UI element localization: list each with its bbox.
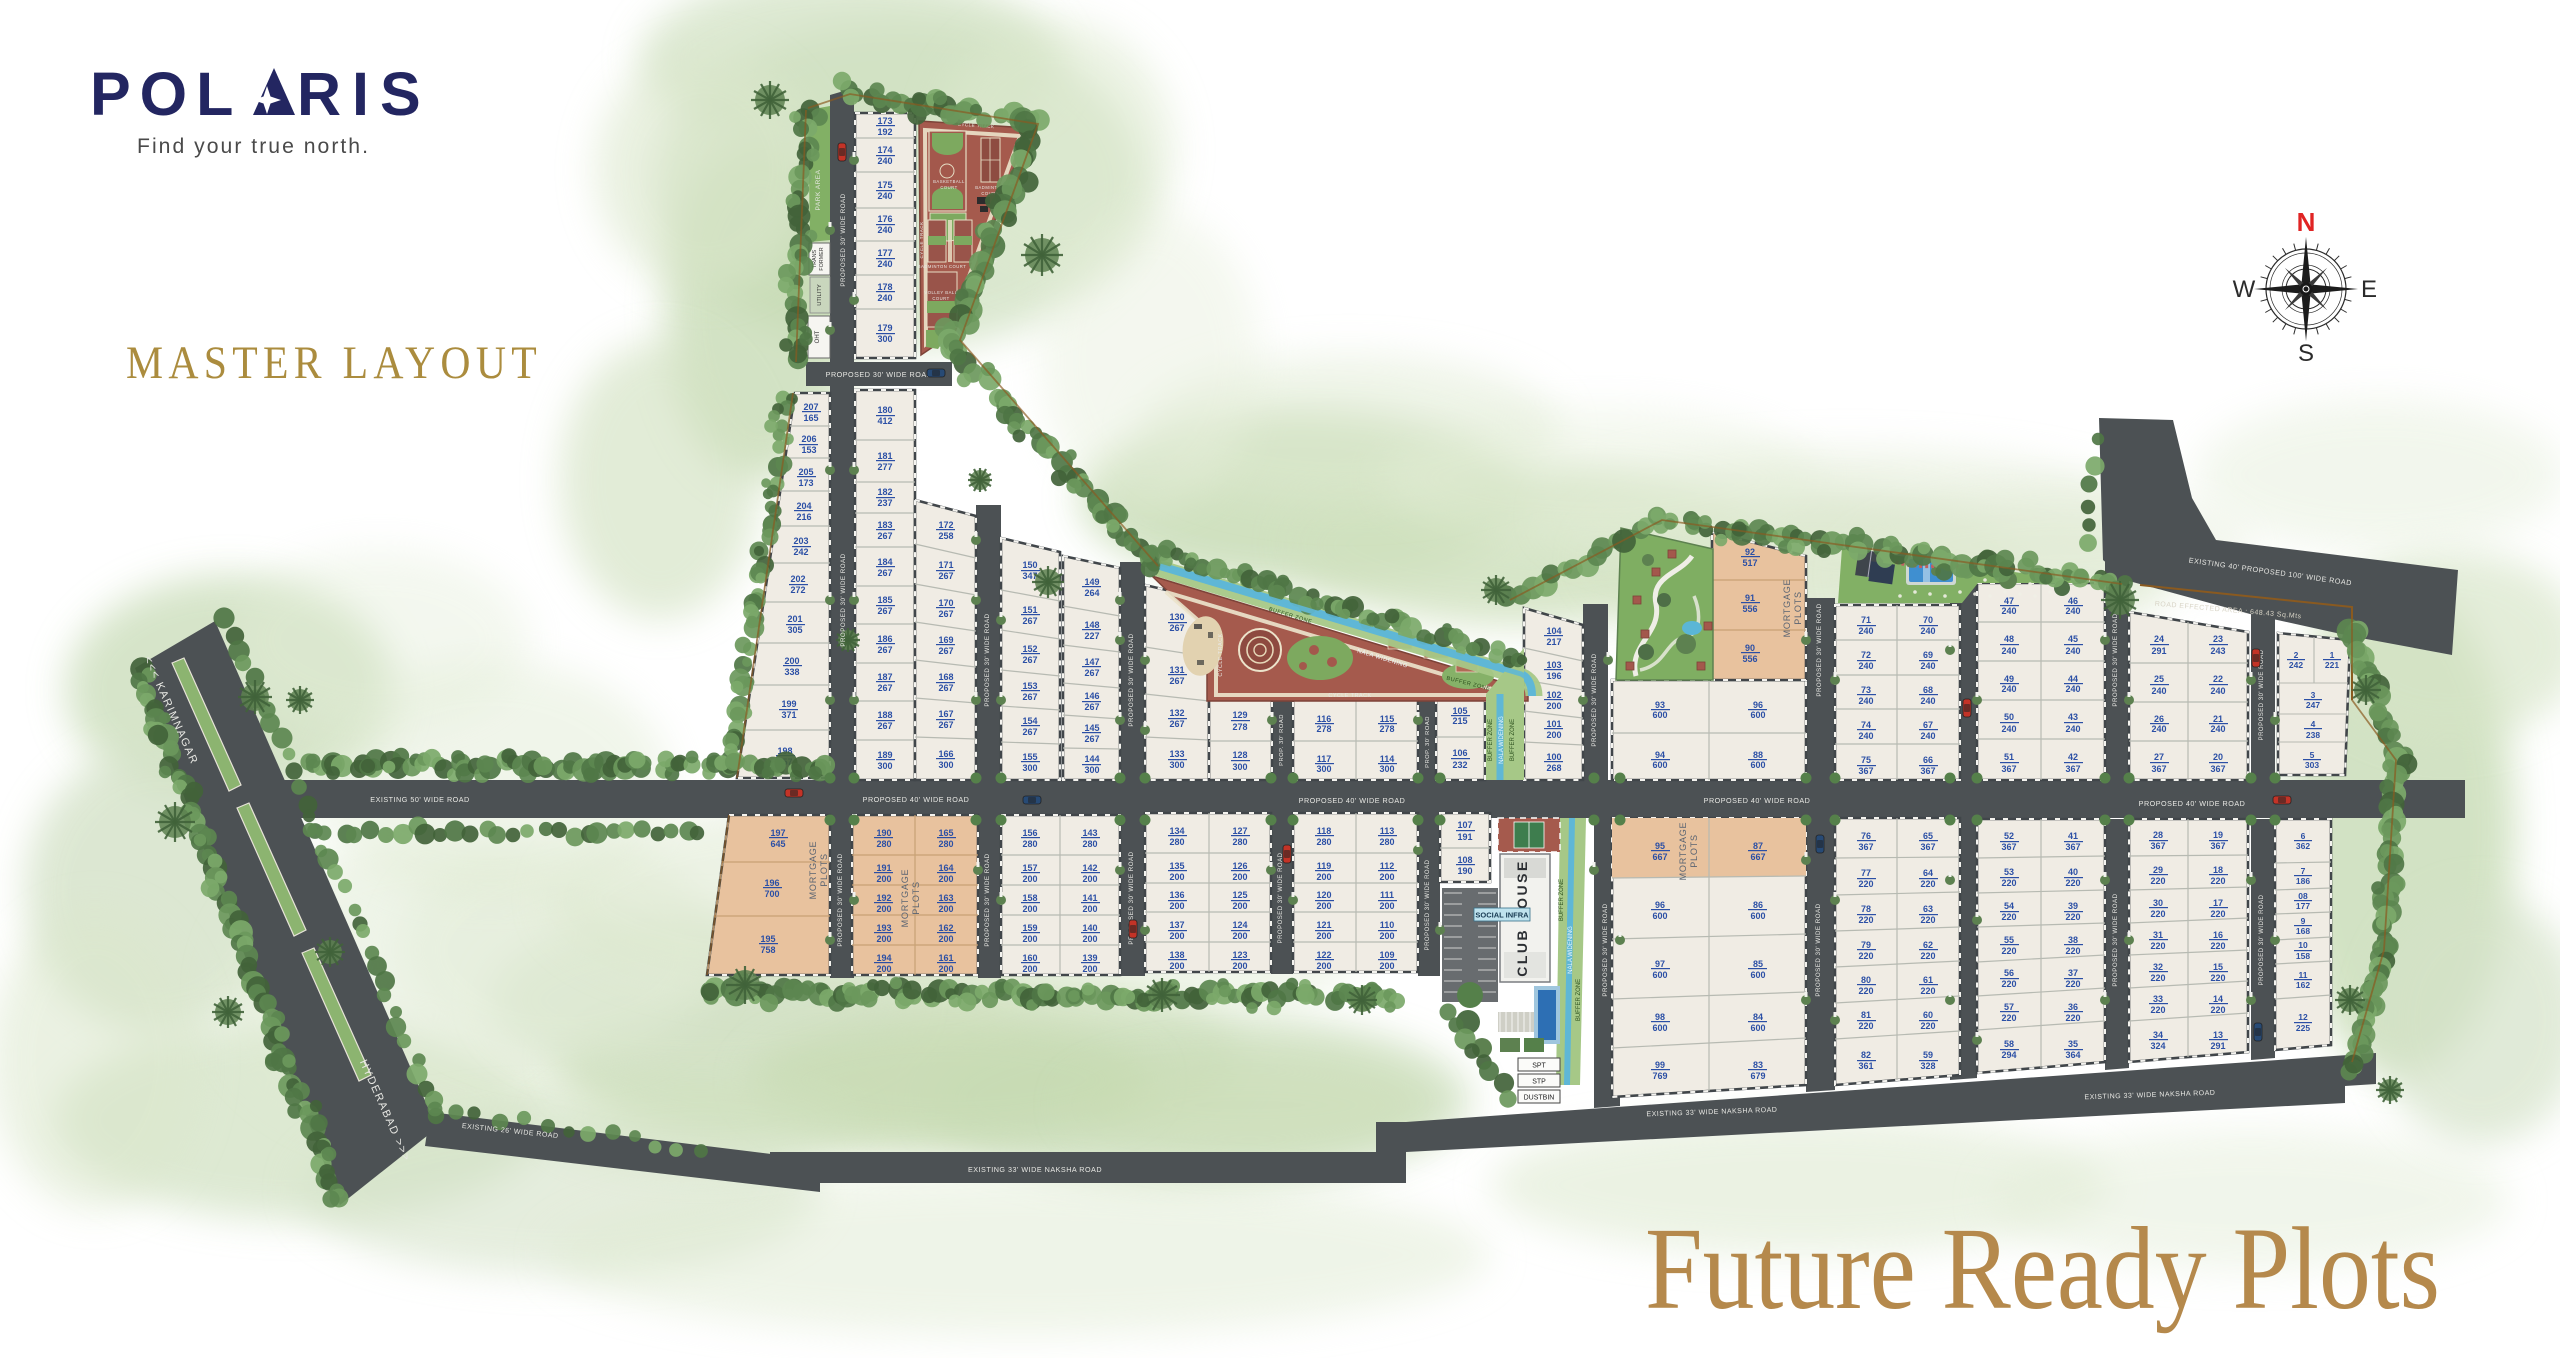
svg-text:131: 131 (1169, 665, 1184, 675)
svg-text:200: 200 (1169, 961, 1184, 971)
svg-text:21: 21 (2213, 714, 2223, 724)
svg-text:162: 162 (2296, 980, 2310, 990)
svg-text:185: 185 (877, 595, 892, 605)
svg-text:29: 29 (2153, 865, 2163, 875)
svg-text:44: 44 (2068, 674, 2078, 684)
svg-text:328: 328 (1920, 1061, 1935, 1071)
svg-text:146: 146 (1084, 691, 1099, 701)
svg-text:163: 163 (938, 893, 953, 903)
svg-text:667: 667 (1652, 852, 1667, 862)
svg-text:PROPOSED 30' WIDE ROAD: PROPOSED 30' WIDE ROAD (1815, 903, 1822, 996)
svg-text:600: 600 (1750, 970, 1765, 980)
svg-text:600: 600 (1750, 760, 1765, 770)
svg-text:119: 119 (1317, 861, 1332, 871)
svg-text:200: 200 (1022, 904, 1037, 914)
svg-text:280: 280 (1232, 837, 1247, 847)
svg-text:216: 216 (796, 512, 811, 522)
svg-text:PROPOSED 30' WIDE ROAD: PROPOSED 30' WIDE ROAD (1425, 859, 1431, 950)
svg-text:1: 1 (2330, 650, 2335, 660)
svg-text:280: 280 (1022, 839, 1037, 849)
svg-text:2: 2 (2294, 650, 2299, 660)
svg-text:MORTGAGE: MORTGAGE (900, 869, 910, 928)
svg-text:38: 38 (2068, 935, 2078, 945)
svg-text:PROPOSED 40' WIDE ROAD: PROPOSED 40' WIDE ROAD (1299, 796, 1406, 805)
svg-text:367: 367 (1858, 842, 1873, 852)
svg-text:48: 48 (2004, 634, 2014, 644)
svg-text:168: 168 (938, 672, 953, 682)
svg-text:173: 173 (877, 116, 892, 126)
svg-text:220: 220 (1858, 879, 1873, 889)
svg-text:153: 153 (801, 445, 816, 455)
svg-text:OHT: OHT (815, 330, 821, 343)
svg-text:UTILITY: UTILITY (817, 284, 823, 306)
svg-text:205: 205 (798, 467, 813, 477)
svg-text:280: 280 (1316, 837, 1331, 847)
svg-text:165: 165 (803, 413, 818, 423)
svg-text:178: 178 (877, 282, 892, 292)
svg-text:BUFFER ZONE: BUFFER ZONE (1559, 879, 1565, 921)
svg-text:160: 160 (1022, 953, 1037, 963)
svg-text:180: 180 (877, 405, 892, 415)
svg-text:158: 158 (2296, 951, 2310, 961)
svg-text:200: 200 (1022, 874, 1037, 884)
svg-text:PLOTS: PLOTS (1793, 591, 1803, 625)
svg-text:207: 207 (803, 402, 818, 412)
svg-text:220: 220 (1920, 915, 1935, 925)
svg-text:28: 28 (2153, 830, 2163, 840)
svg-text:367: 367 (1920, 842, 1935, 852)
svg-text:200: 200 (876, 934, 891, 944)
svg-text:172: 172 (938, 520, 953, 530)
svg-text:338: 338 (784, 667, 799, 677)
svg-text:EXISTING 33' WIDE NAKSHA ROAD: EXISTING 33' WIDE NAKSHA ROAD (968, 1165, 1102, 1174)
svg-text:45: 45 (2068, 634, 2078, 644)
svg-text:240: 240 (2210, 724, 2225, 734)
svg-text:169: 169 (938, 635, 953, 645)
svg-text:3: 3 (2311, 690, 2316, 700)
svg-text:PLOTS: PLOTS (911, 881, 921, 915)
svg-text:200: 200 (1232, 931, 1247, 941)
svg-text:69: 69 (1923, 650, 1933, 660)
svg-text:PROPOSED 30' WIDE ROAD: PROPOSED 30' WIDE ROAD (1278, 852, 1284, 943)
svg-text:240: 240 (1920, 731, 1935, 741)
svg-text:200: 200 (1379, 931, 1394, 941)
svg-text:201: 201 (787, 614, 802, 624)
svg-text:141: 141 (1082, 893, 1097, 903)
svg-text:32: 32 (2153, 962, 2163, 972)
svg-text:600: 600 (1652, 760, 1667, 770)
svg-text:645: 645 (770, 839, 785, 849)
svg-text:220: 220 (1858, 986, 1873, 996)
svg-text:17: 17 (2213, 898, 2223, 908)
svg-text:PROPOSED 30' WIDE ROAD: PROPOSED 30' WIDE ROAD (984, 853, 991, 946)
svg-text:300: 300 (1084, 765, 1099, 775)
svg-text:267: 267 (938, 720, 953, 730)
svg-text:125: 125 (1232, 890, 1247, 900)
svg-text:13: 13 (2213, 1030, 2223, 1040)
svg-text:188: 188 (877, 710, 892, 720)
svg-text:267: 267 (1022, 616, 1037, 626)
svg-text:142: 142 (1082, 863, 1097, 873)
svg-text:170: 170 (938, 598, 953, 608)
svg-text:144: 144 (1084, 754, 1099, 764)
svg-text:200: 200 (938, 904, 953, 914)
svg-text:MORTGAGE: MORTGAGE (808, 841, 818, 900)
svg-text:240: 240 (2065, 606, 2080, 616)
svg-text:267: 267 (877, 606, 892, 616)
svg-text:CYCLE TRACK: CYCLE TRACK (1218, 633, 1224, 676)
svg-text:9: 9 (2301, 916, 2306, 926)
svg-text:225: 225 (2296, 1023, 2310, 1033)
svg-text:220: 220 (2065, 1013, 2080, 1023)
svg-text:PROPOSED 30' WIDE ROAD: PROPOSED 30' WIDE ROAD (2112, 613, 2119, 706)
svg-text:267: 267 (1022, 692, 1037, 702)
svg-text:240: 240 (1858, 626, 1873, 636)
svg-text:220: 220 (2210, 876, 2225, 886)
svg-text:137: 137 (1169, 920, 1184, 930)
svg-text:291: 291 (2151, 646, 2166, 656)
svg-text:267: 267 (1084, 668, 1099, 678)
svg-text:182: 182 (877, 487, 892, 497)
svg-text:153: 153 (1022, 681, 1037, 691)
svg-text:268: 268 (1546, 763, 1561, 773)
svg-text:600: 600 (1652, 1023, 1667, 1033)
svg-text:83: 83 (1753, 1060, 1763, 1070)
svg-text:149: 149 (1084, 577, 1099, 587)
svg-text:6: 6 (2301, 831, 2306, 841)
svg-text:161: 161 (938, 953, 953, 963)
svg-text:181: 181 (877, 451, 892, 461)
svg-text:367: 367 (2001, 842, 2016, 852)
svg-text:128: 128 (1232, 750, 1247, 760)
svg-text:113: 113 (1380, 826, 1395, 836)
svg-text:200: 200 (1022, 964, 1037, 974)
svg-text:PROPOSED 30' WIDE ROAD: PROPOSED 30' WIDE ROAD (840, 193, 847, 286)
svg-text:BUFFER ZONE: BUFFER ZONE (1488, 719, 1494, 761)
svg-text:26: 26 (2154, 714, 2164, 724)
svg-text:300: 300 (1316, 764, 1331, 774)
svg-text:193: 193 (876, 923, 891, 933)
svg-text:126: 126 (1232, 861, 1247, 871)
svg-text:73: 73 (1861, 685, 1871, 695)
svg-text:158: 158 (1022, 893, 1037, 903)
svg-text:NALA WIDENING: NALA WIDENING (1568, 926, 1574, 974)
svg-text:24: 24 (2154, 634, 2164, 644)
svg-text:118: 118 (1317, 826, 1332, 836)
svg-text:95: 95 (1655, 841, 1665, 851)
svg-text:272: 272 (790, 585, 805, 595)
svg-text:124: 124 (1232, 920, 1247, 930)
svg-text:220: 220 (1858, 1021, 1873, 1031)
svg-text:104: 104 (1546, 626, 1561, 636)
svg-text:12: 12 (2298, 1012, 2308, 1022)
svg-text:200: 200 (1169, 931, 1184, 941)
svg-text:PROP. 30' ROAD: PROP. 30' ROAD (1425, 716, 1431, 768)
svg-text:145: 145 (1084, 723, 1099, 733)
svg-text:367: 367 (2001, 764, 2016, 774)
svg-text:127: 127 (1232, 826, 1247, 836)
svg-text:PLOTS: PLOTS (1689, 834, 1699, 868)
svg-text:177: 177 (877, 248, 892, 258)
svg-text:54: 54 (2004, 901, 2014, 911)
svg-text:166: 166 (938, 749, 953, 759)
svg-text:PROPOSED 40' WIDE ROAD: PROPOSED 40' WIDE ROAD (863, 795, 970, 804)
svg-text:56: 56 (2004, 968, 2014, 978)
svg-text:140: 140 (1082, 923, 1097, 933)
svg-text:47: 47 (2004, 596, 2014, 606)
svg-text:200: 200 (876, 904, 891, 914)
svg-text:200: 200 (1082, 874, 1097, 884)
svg-text:70: 70 (1923, 615, 1933, 625)
svg-text:5: 5 (2310, 750, 2315, 760)
svg-text:97: 97 (1655, 959, 1665, 969)
svg-text:758: 758 (760, 945, 775, 955)
svg-text:100: 100 (1546, 752, 1561, 762)
svg-text:E: E (2361, 276, 2377, 303)
svg-text:220: 220 (2065, 878, 2080, 888)
svg-text:300: 300 (1022, 763, 1037, 773)
svg-text:BUFFER ZONE: BUFFER ZONE (1576, 979, 1582, 1021)
svg-text:278: 278 (1379, 724, 1394, 734)
svg-text:75: 75 (1861, 755, 1871, 765)
svg-text:200: 200 (938, 964, 953, 974)
svg-text:NALA WIDENING: NALA WIDENING (1499, 716, 1505, 764)
svg-text:367: 367 (2151, 764, 2166, 774)
svg-text:72: 72 (1861, 650, 1871, 660)
svg-text:199: 199 (781, 699, 796, 709)
svg-text:PROPOSED 40' WIDE ROAD: PROPOSED 40' WIDE ROAD (1704, 796, 1811, 805)
svg-text:220: 220 (1920, 951, 1935, 961)
svg-text:364: 364 (2065, 1050, 2080, 1060)
svg-text:556: 556 (1742, 604, 1757, 614)
svg-text:61: 61 (1923, 975, 1933, 985)
svg-text:MORTGAGE: MORTGAGE (1782, 579, 1792, 638)
svg-text:220: 220 (2065, 979, 2080, 989)
svg-text:138: 138 (1169, 950, 1184, 960)
svg-text:57: 57 (2004, 1002, 2014, 1012)
svg-text:280: 280 (1082, 839, 1097, 849)
svg-text:STP: STP (1532, 1079, 1546, 1086)
svg-text:267: 267 (877, 683, 892, 693)
svg-text:280: 280 (1379, 837, 1394, 847)
svg-text:258: 258 (938, 531, 953, 541)
svg-text:18: 18 (2213, 865, 2223, 875)
svg-text:S: S (2298, 340, 2314, 367)
svg-text:267: 267 (938, 646, 953, 656)
svg-text:267: 267 (877, 721, 892, 731)
svg-text:42: 42 (2068, 752, 2078, 762)
svg-text:122: 122 (1316, 950, 1331, 960)
svg-text:200: 200 (1169, 901, 1184, 911)
svg-text:123: 123 (1232, 950, 1247, 960)
svg-text:Future Ready Plots: Future Ready Plots (1645, 1203, 2440, 1334)
svg-text:154: 154 (1022, 716, 1037, 726)
svg-text:177: 177 (2296, 901, 2310, 911)
svg-text:16: 16 (2213, 930, 2223, 940)
svg-text:267: 267 (1084, 702, 1099, 712)
svg-text:367: 367 (2210, 764, 2225, 774)
svg-text:267: 267 (1169, 719, 1184, 729)
svg-text:PROPOSED 30' WIDE ROAD: PROPOSED 30' WIDE ROAD (1591, 653, 1598, 746)
svg-text:PROPOSED 30' WIDE ROAD: PROPOSED 30' WIDE ROAD (1602, 903, 1609, 996)
svg-text:200: 200 (1169, 872, 1184, 882)
svg-text:41: 41 (2068, 831, 2078, 841)
svg-text:COURT: COURT (932, 296, 949, 301)
svg-text:242: 242 (2289, 660, 2303, 670)
svg-text:15: 15 (2213, 962, 2223, 972)
svg-text:240: 240 (2065, 646, 2080, 656)
svg-text:31: 31 (2153, 930, 2163, 940)
svg-text:300: 300 (877, 761, 892, 771)
svg-text:VOLLEY BALL: VOLLEY BALL (924, 290, 957, 295)
svg-text:121: 121 (1316, 920, 1331, 930)
svg-text:187: 187 (877, 672, 892, 682)
svg-text:240: 240 (1858, 731, 1873, 741)
svg-text:367: 367 (2150, 841, 2165, 851)
svg-text:280: 280 (938, 839, 953, 849)
svg-text:143: 143 (1082, 828, 1097, 838)
svg-text:82: 82 (1861, 1050, 1871, 1060)
svg-text:CYCLE TRACK: CYCLE TRACK (1328, 693, 1371, 699)
svg-text:51: 51 (2004, 752, 2014, 762)
svg-text:PROPOSED 30' WIDE ROAD: PROPOSED 30' WIDE ROAD (1816, 603, 1823, 696)
svg-text:74: 74 (1861, 720, 1871, 730)
svg-text:14: 14 (2213, 994, 2223, 1004)
svg-text:111: 111 (1380, 890, 1394, 900)
svg-text:600: 600 (1652, 911, 1667, 921)
svg-text:135: 135 (1169, 861, 1184, 871)
svg-text:267: 267 (938, 571, 953, 581)
svg-text:220: 220 (2210, 973, 2225, 983)
svg-text:148: 148 (1084, 620, 1099, 630)
svg-text:EXISTING 50' WIDE ROAD: EXISTING 50' WIDE ROAD (370, 795, 469, 804)
svg-text:243: 243 (2210, 646, 2225, 656)
svg-text:280: 280 (876, 839, 891, 849)
svg-text:112: 112 (1380, 861, 1395, 871)
svg-text:300: 300 (1232, 762, 1247, 772)
svg-text:240: 240 (2151, 686, 2166, 696)
svg-text:247: 247 (2306, 700, 2320, 710)
svg-text:MORTGAGE: MORTGAGE (1678, 822, 1688, 881)
svg-text:200: 200 (876, 874, 891, 884)
svg-text:194: 194 (876, 953, 891, 963)
svg-text:240: 240 (877, 293, 892, 303)
svg-text:267: 267 (1022, 727, 1037, 737)
svg-text:240: 240 (1858, 661, 1873, 671)
svg-text:52: 52 (2004, 831, 2014, 841)
svg-text:39: 39 (2068, 901, 2078, 911)
svg-text:176: 176 (877, 214, 892, 224)
svg-text:192: 192 (876, 893, 891, 903)
svg-text:91: 91 (1745, 593, 1755, 603)
svg-text:300: 300 (1169, 760, 1184, 770)
svg-text:CYCLE TRACK: CYCLE TRACK (919, 222, 924, 259)
svg-text:SPT: SPT (1532, 1063, 1546, 1070)
svg-text:200: 200 (938, 874, 953, 884)
svg-text:Find your true north.: Find your true north. (137, 135, 370, 158)
svg-text:220: 220 (2001, 979, 2016, 989)
svg-text:367: 367 (2210, 841, 2225, 851)
svg-text:120: 120 (1316, 890, 1331, 900)
svg-text:PARK AREA: PARK AREA (815, 169, 822, 210)
svg-text:240: 240 (2065, 724, 2080, 734)
svg-text:186: 186 (2296, 876, 2310, 886)
svg-text:116: 116 (1317, 714, 1332, 724)
svg-text:22: 22 (2213, 674, 2223, 684)
svg-text:192: 192 (877, 127, 892, 137)
svg-text:240: 240 (1920, 626, 1935, 636)
svg-text:600: 600 (1750, 1023, 1765, 1033)
svg-text:191: 191 (876, 863, 891, 873)
svg-text:240: 240 (2151, 724, 2166, 734)
svg-text:43: 43 (2068, 712, 2078, 722)
svg-text:238: 238 (2306, 730, 2320, 740)
svg-text:23: 23 (2213, 634, 2223, 644)
svg-text:277: 277 (877, 462, 892, 472)
svg-text:164: 164 (938, 863, 953, 873)
svg-text:133: 133 (1169, 749, 1184, 759)
svg-text:65: 65 (1923, 831, 1933, 841)
svg-text:240: 240 (877, 191, 892, 201)
svg-text:190: 190 (876, 828, 891, 838)
svg-text:200: 200 (1379, 901, 1394, 911)
svg-text:36: 36 (2068, 1002, 2078, 1012)
svg-text:367: 367 (2065, 764, 2080, 774)
svg-text:167: 167 (938, 709, 953, 719)
svg-text:196: 196 (764, 878, 779, 888)
svg-text:115: 115 (1380, 714, 1395, 724)
svg-text:200: 200 (784, 656, 799, 666)
svg-text:200: 200 (876, 964, 891, 974)
svg-text:200: 200 (1082, 904, 1097, 914)
svg-text:BASKETBALL: BASKETBALL (933, 179, 965, 184)
svg-text:200: 200 (1379, 872, 1394, 882)
svg-text:162: 162 (938, 923, 953, 933)
svg-text:152: 152 (1022, 644, 1037, 654)
svg-text:134: 134 (1169, 826, 1184, 836)
svg-text:78: 78 (1861, 904, 1871, 914)
svg-text:203: 203 (793, 536, 808, 546)
svg-text:34: 34 (2153, 1030, 2163, 1040)
svg-text:200: 200 (1022, 934, 1037, 944)
svg-text:267: 267 (938, 609, 953, 619)
svg-text:221: 221 (2325, 660, 2339, 670)
svg-text:156: 156 (1022, 828, 1037, 838)
svg-text:DUSTBIN: DUSTBIN (1524, 1095, 1555, 1102)
svg-text:294: 294 (2001, 1050, 2016, 1060)
svg-text:46: 46 (2068, 596, 2078, 606)
svg-text:517: 517 (1742, 558, 1757, 568)
svg-text:220: 220 (2150, 909, 2165, 919)
svg-text:200: 200 (938, 934, 953, 944)
svg-text:240: 240 (877, 259, 892, 269)
svg-text:129: 129 (1232, 710, 1247, 720)
svg-text:220: 220 (1920, 986, 1935, 996)
svg-text:80: 80 (1861, 975, 1871, 985)
svg-text:600: 600 (1652, 970, 1667, 980)
svg-text:232: 232 (1452, 760, 1467, 770)
svg-text:SOCIAL INFRA: SOCIAL INFRA (1475, 911, 1529, 920)
svg-text:240: 240 (1920, 696, 1935, 706)
svg-text:240: 240 (2001, 646, 2016, 656)
svg-text:600: 600 (1652, 710, 1667, 720)
svg-text:367: 367 (2065, 842, 2080, 852)
svg-text:MASTER LAYOUT: MASTER LAYOUT (126, 337, 542, 389)
svg-text:291: 291 (2210, 1041, 2225, 1051)
svg-text:98: 98 (1655, 1012, 1665, 1022)
svg-text:200: 200 (1316, 931, 1331, 941)
svg-text:W: W (2233, 276, 2256, 303)
